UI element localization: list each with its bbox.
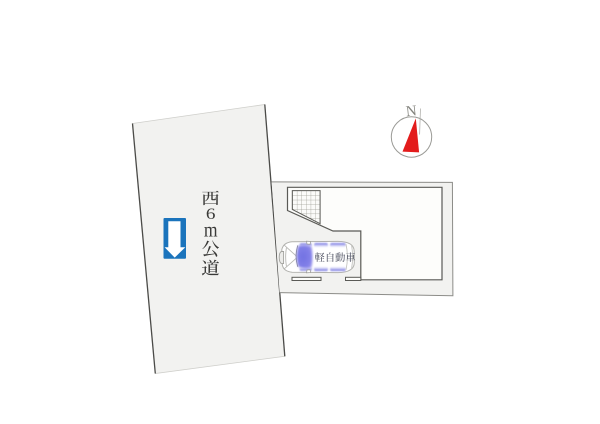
svg-text:N: N <box>405 103 418 120</box>
svg-text:m: m <box>204 219 218 241</box>
